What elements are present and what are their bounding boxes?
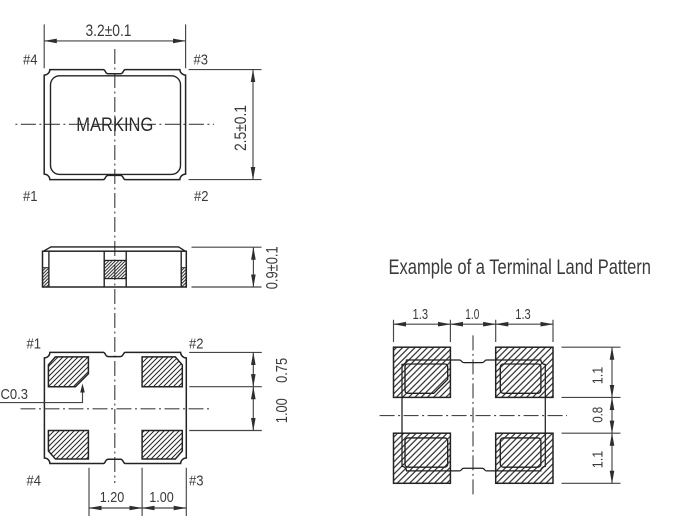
svg-text:#4: #4	[23, 52, 38, 69]
svg-text:1.3: 1.3	[413, 306, 429, 323]
svg-text:C0.3: C0.3	[1, 386, 29, 403]
svg-text:MARKING: MARKING	[76, 114, 153, 136]
svg-text:3.2±0.1: 3.2±0.1	[86, 21, 132, 40]
svg-text:#1: #1	[27, 336, 42, 353]
svg-text:0.9±0.1: 0.9±0.1	[263, 246, 282, 289]
svg-text:2.5±0.1: 2.5±0.1	[231, 105, 250, 151]
svg-text:0.8: 0.8	[590, 407, 607, 423]
svg-text:0.75: 0.75	[274, 358, 291, 383]
svg-text:1.0: 1.0	[465, 306, 479, 323]
svg-text:#2: #2	[189, 336, 204, 353]
svg-text:1.1: 1.1	[590, 367, 607, 385]
svg-text:1.20: 1.20	[100, 489, 125, 506]
svg-text:1.1: 1.1	[590, 451, 607, 469]
svg-text:1.00: 1.00	[274, 398, 291, 423]
svg-text:#4: #4	[27, 473, 42, 490]
svg-text:1.00: 1.00	[149, 489, 174, 506]
svg-text:#2: #2	[194, 188, 209, 205]
svg-text:1.3: 1.3	[515, 306, 531, 323]
svg-text:#1: #1	[23, 188, 38, 205]
svg-text:#3: #3	[189, 473, 204, 490]
svg-text:#3: #3	[194, 52, 209, 69]
svg-text:Example of a Terminal Land Pat: Example of a Terminal Land Pattern	[389, 256, 652, 279]
